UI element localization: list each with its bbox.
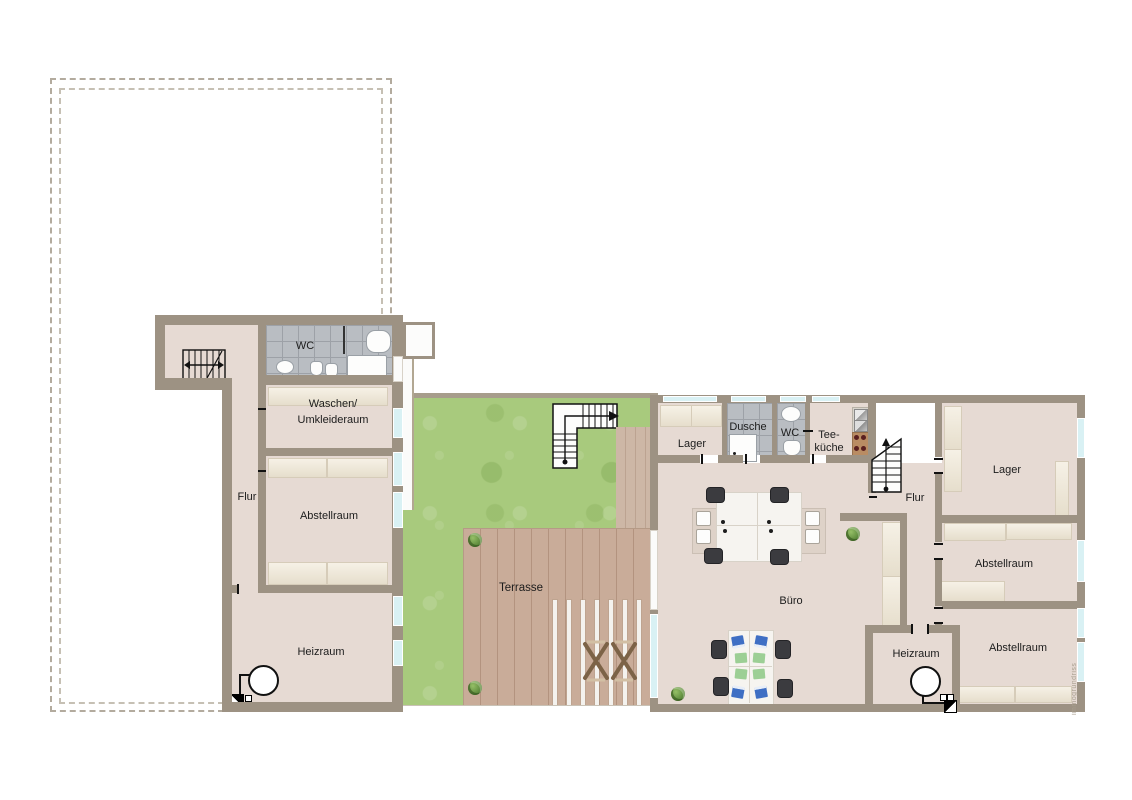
toilet-icon — [783, 440, 801, 456]
wall — [722, 403, 727, 455]
boiler-icon — [910, 666, 941, 697]
wall — [942, 515, 1085, 523]
room-label-abstellraum-1: Abstellraum — [975, 558, 1033, 570]
room-label-flur-right: Flur — [906, 492, 925, 504]
burner — [854, 446, 859, 451]
burner — [861, 435, 866, 440]
office-chair-icon — [713, 677, 729, 696]
room-label-teekueche-2: küche — [814, 442, 843, 454]
floor-plan: Terrasse — [0, 0, 1132, 800]
laptop-icon — [754, 635, 768, 649]
window — [393, 596, 403, 626]
boiler-pipe — [922, 702, 946, 704]
window — [1077, 642, 1085, 682]
wall — [222, 702, 403, 712]
room-label-wc-left: WC — [296, 340, 314, 352]
wall — [935, 560, 942, 606]
door-tick — [812, 454, 814, 464]
paper-sheet — [753, 668, 766, 679]
window — [780, 396, 806, 402]
desk-cluster — [716, 492, 802, 562]
shelf — [944, 523, 1006, 541]
cabinet — [944, 406, 962, 450]
wall — [222, 378, 232, 712]
window — [393, 452, 403, 486]
office-chair-icon — [775, 640, 791, 659]
monitor-icon — [805, 529, 820, 544]
window — [650, 614, 658, 698]
window — [393, 640, 403, 666]
room-label-dusche: Dusche — [729, 421, 766, 433]
office-chair-icon — [711, 640, 727, 659]
wall — [718, 455, 743, 463]
door-tick — [237, 584, 239, 594]
exterior-stair-icon — [549, 400, 623, 472]
door-tick — [934, 558, 943, 560]
wall — [658, 455, 700, 463]
door-tick — [934, 458, 943, 460]
office-chair-icon — [704, 548, 723, 564]
burner — [861, 446, 866, 451]
wall — [935, 474, 942, 542]
bathtub-icon — [366, 330, 391, 353]
laptop-icon — [754, 685, 768, 699]
shelf — [1006, 523, 1072, 540]
room-label-lager-top: Lager — [678, 438, 706, 450]
door-tick — [911, 624, 913, 634]
window — [1077, 540, 1085, 582]
room-label-abstellraum-2: Abstellraum — [989, 642, 1047, 654]
wall — [258, 325, 266, 593]
door-tick — [927, 624, 929, 634]
room-label-waschen-1: Waschen/ — [309, 398, 358, 410]
monitor-icon — [696, 529, 711, 544]
door-tick — [934, 472, 943, 474]
sink-icon — [781, 406, 801, 422]
door-tick — [701, 454, 703, 464]
window — [812, 396, 840, 402]
desk-phone — [767, 520, 771, 524]
office-chair-icon — [770, 549, 789, 565]
room-label-buero: Büro — [779, 595, 802, 607]
shelf — [327, 562, 388, 585]
wall — [840, 513, 907, 521]
cabinet — [882, 576, 902, 629]
window — [393, 492, 403, 528]
monitor-icon — [805, 511, 820, 526]
window — [731, 396, 766, 402]
electrical-box-icon — [245, 695, 252, 702]
laptop-icon — [731, 635, 745, 649]
shelf — [1015, 686, 1072, 703]
wall — [155, 378, 232, 390]
wall — [935, 403, 942, 457]
burner — [854, 435, 859, 440]
wall — [826, 455, 868, 463]
lawn-bottom-band — [403, 705, 658, 715]
walkway — [403, 352, 414, 510]
wall — [266, 448, 392, 456]
door-tick — [745, 454, 747, 464]
cabinet — [660, 405, 692, 427]
cabinet — [1055, 461, 1069, 516]
plant-icon — [846, 527, 860, 541]
room-label-heizraum-right: Heizraum — [892, 648, 939, 660]
window — [1077, 608, 1085, 638]
desk-phone — [769, 529, 773, 533]
monitor-icon — [696, 511, 711, 526]
door-tick — [934, 622, 943, 624]
office-chair-icon — [777, 679, 793, 698]
door-tick — [258, 470, 266, 472]
stair-icon — [182, 349, 226, 381]
shelf — [957, 686, 1015, 703]
sink-icon — [276, 360, 294, 374]
room-label-waschen-2: Umkleideraum — [298, 414, 369, 426]
window — [1077, 418, 1085, 458]
watermark: immogrundriss — [1071, 655, 1078, 715]
plant-icon — [468, 681, 482, 695]
flur-left-floor — [232, 378, 258, 593]
terrace-step — [567, 600, 571, 707]
paper-sheet — [753, 652, 766, 663]
room-label-heizraum-left: Heizraum — [297, 646, 344, 658]
room-label-terrasse: Terrasse — [499, 582, 543, 594]
door-tick — [934, 543, 943, 545]
terrace-step — [553, 600, 557, 707]
terrace-door — [650, 530, 658, 610]
electrical-box-icon — [944, 700, 957, 713]
wall — [942, 601, 1085, 609]
desk-divider — [716, 525, 800, 526]
shelf — [941, 581, 1005, 602]
desk-phone — [721, 520, 725, 524]
table-divider — [728, 666, 772, 667]
door-tick — [803, 430, 813, 432]
wall — [805, 403, 810, 455]
paper-sheet — [735, 668, 748, 679]
wc-partition — [343, 326, 345, 354]
laptop-icon — [731, 685, 745, 699]
room-label-lager-east: Lager — [993, 464, 1021, 476]
door-tick — [258, 408, 266, 410]
room-label-teekueche-1: Tee- — [818, 429, 839, 441]
kitchen-sink-icon — [854, 420, 868, 432]
desk-phone — [723, 529, 727, 533]
room-label-flur-left: Flur — [238, 491, 257, 503]
wall — [155, 315, 403, 325]
shelf — [268, 458, 327, 478]
wall — [772, 403, 777, 455]
lawn-patch — [403, 510, 410, 707]
paper-sheet — [735, 653, 748, 664]
cabinet — [944, 449, 962, 492]
plant-icon — [468, 533, 482, 547]
shelf — [327, 458, 388, 478]
office-chair-icon — [770, 487, 789, 503]
window — [393, 408, 403, 438]
office-chair-icon — [706, 487, 725, 503]
desk-divider — [757, 492, 758, 560]
toilet-icon — [310, 361, 323, 376]
room-label-abstellraum-left: Abstellraum — [300, 510, 358, 522]
porch — [403, 322, 435, 359]
stair-icon — [870, 436, 903, 494]
wall — [258, 375, 392, 385]
cabinet — [882, 522, 902, 577]
plant-icon — [671, 687, 685, 701]
wall — [900, 515, 907, 633]
wall — [260, 585, 392, 593]
door-tick — [869, 496, 877, 498]
boiler-icon — [248, 665, 279, 696]
room-label-wc-right: WC — [781, 427, 799, 439]
wall — [865, 625, 873, 712]
door-tick — [934, 607, 943, 609]
door — [393, 356, 403, 382]
lounger-icons — [581, 638, 639, 684]
window — [663, 396, 717, 402]
shelf — [268, 562, 327, 585]
wall — [760, 455, 810, 463]
cabinet — [691, 405, 722, 427]
